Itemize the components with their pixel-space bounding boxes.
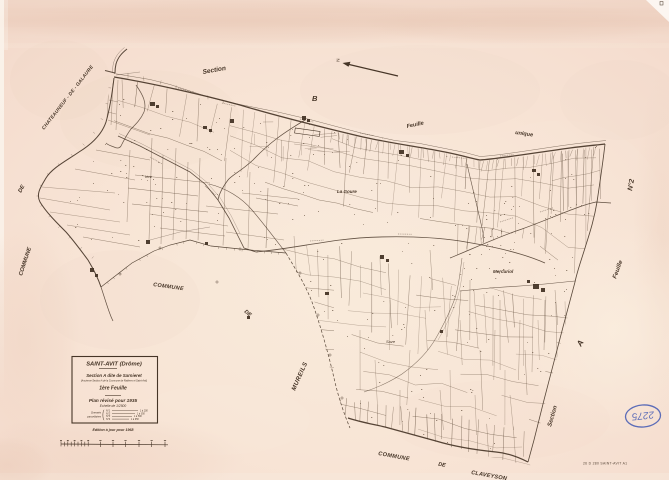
svg-text:26 D 280 SAINT-AVIT A1: 26 D 280 SAINT-AVIT A1 [583,462,627,466]
svg-text:N: N [336,59,341,62]
svg-text:Ière: Ière [145,174,153,179]
svg-text:Suze: Suze [386,339,396,344]
svg-text:Edition à jour pour 1968: Edition à jour pour 1968 [93,428,134,432]
svg-text:1 à 650: 1 à 650 [131,419,139,421]
svg-text:1 à 350: 1 à 350 [137,413,145,415]
svg-text:La Goure: La Goure [337,189,357,194]
svg-text:Plan révisé pour 1935: Plan révisé pour 1935 [89,398,138,403]
svg-text:1ère Feuille: 1ère Feuille [99,386,127,392]
svg-text:Echelle de 1/2500: Echelle de 1/2500 [100,404,127,408]
svg-text:N°4: N°4 [106,418,111,421]
svg-text:1 à 500: 1 à 500 [134,416,142,418]
svg-text:Dressés: Dressés [91,411,102,415]
svg-text:1 à 200: 1 à 200 [140,411,148,413]
svg-text:(Ancienne Section A de la Comm: (Ancienne Section A de la Commune de Rat… [81,379,148,382]
svg-text:SAINT-AVIT (Drôme): SAINT-AVIT (Drôme) [86,362,142,368]
svg-text:parcellaires: parcellaires [86,415,101,419]
svg-text:Section A dite de Sarnieret: Section A dite de Sarnieret [86,373,142,378]
svg-text:Mercuriol: Mercuriol [493,269,514,274]
svg-text:B: B [312,94,318,103]
